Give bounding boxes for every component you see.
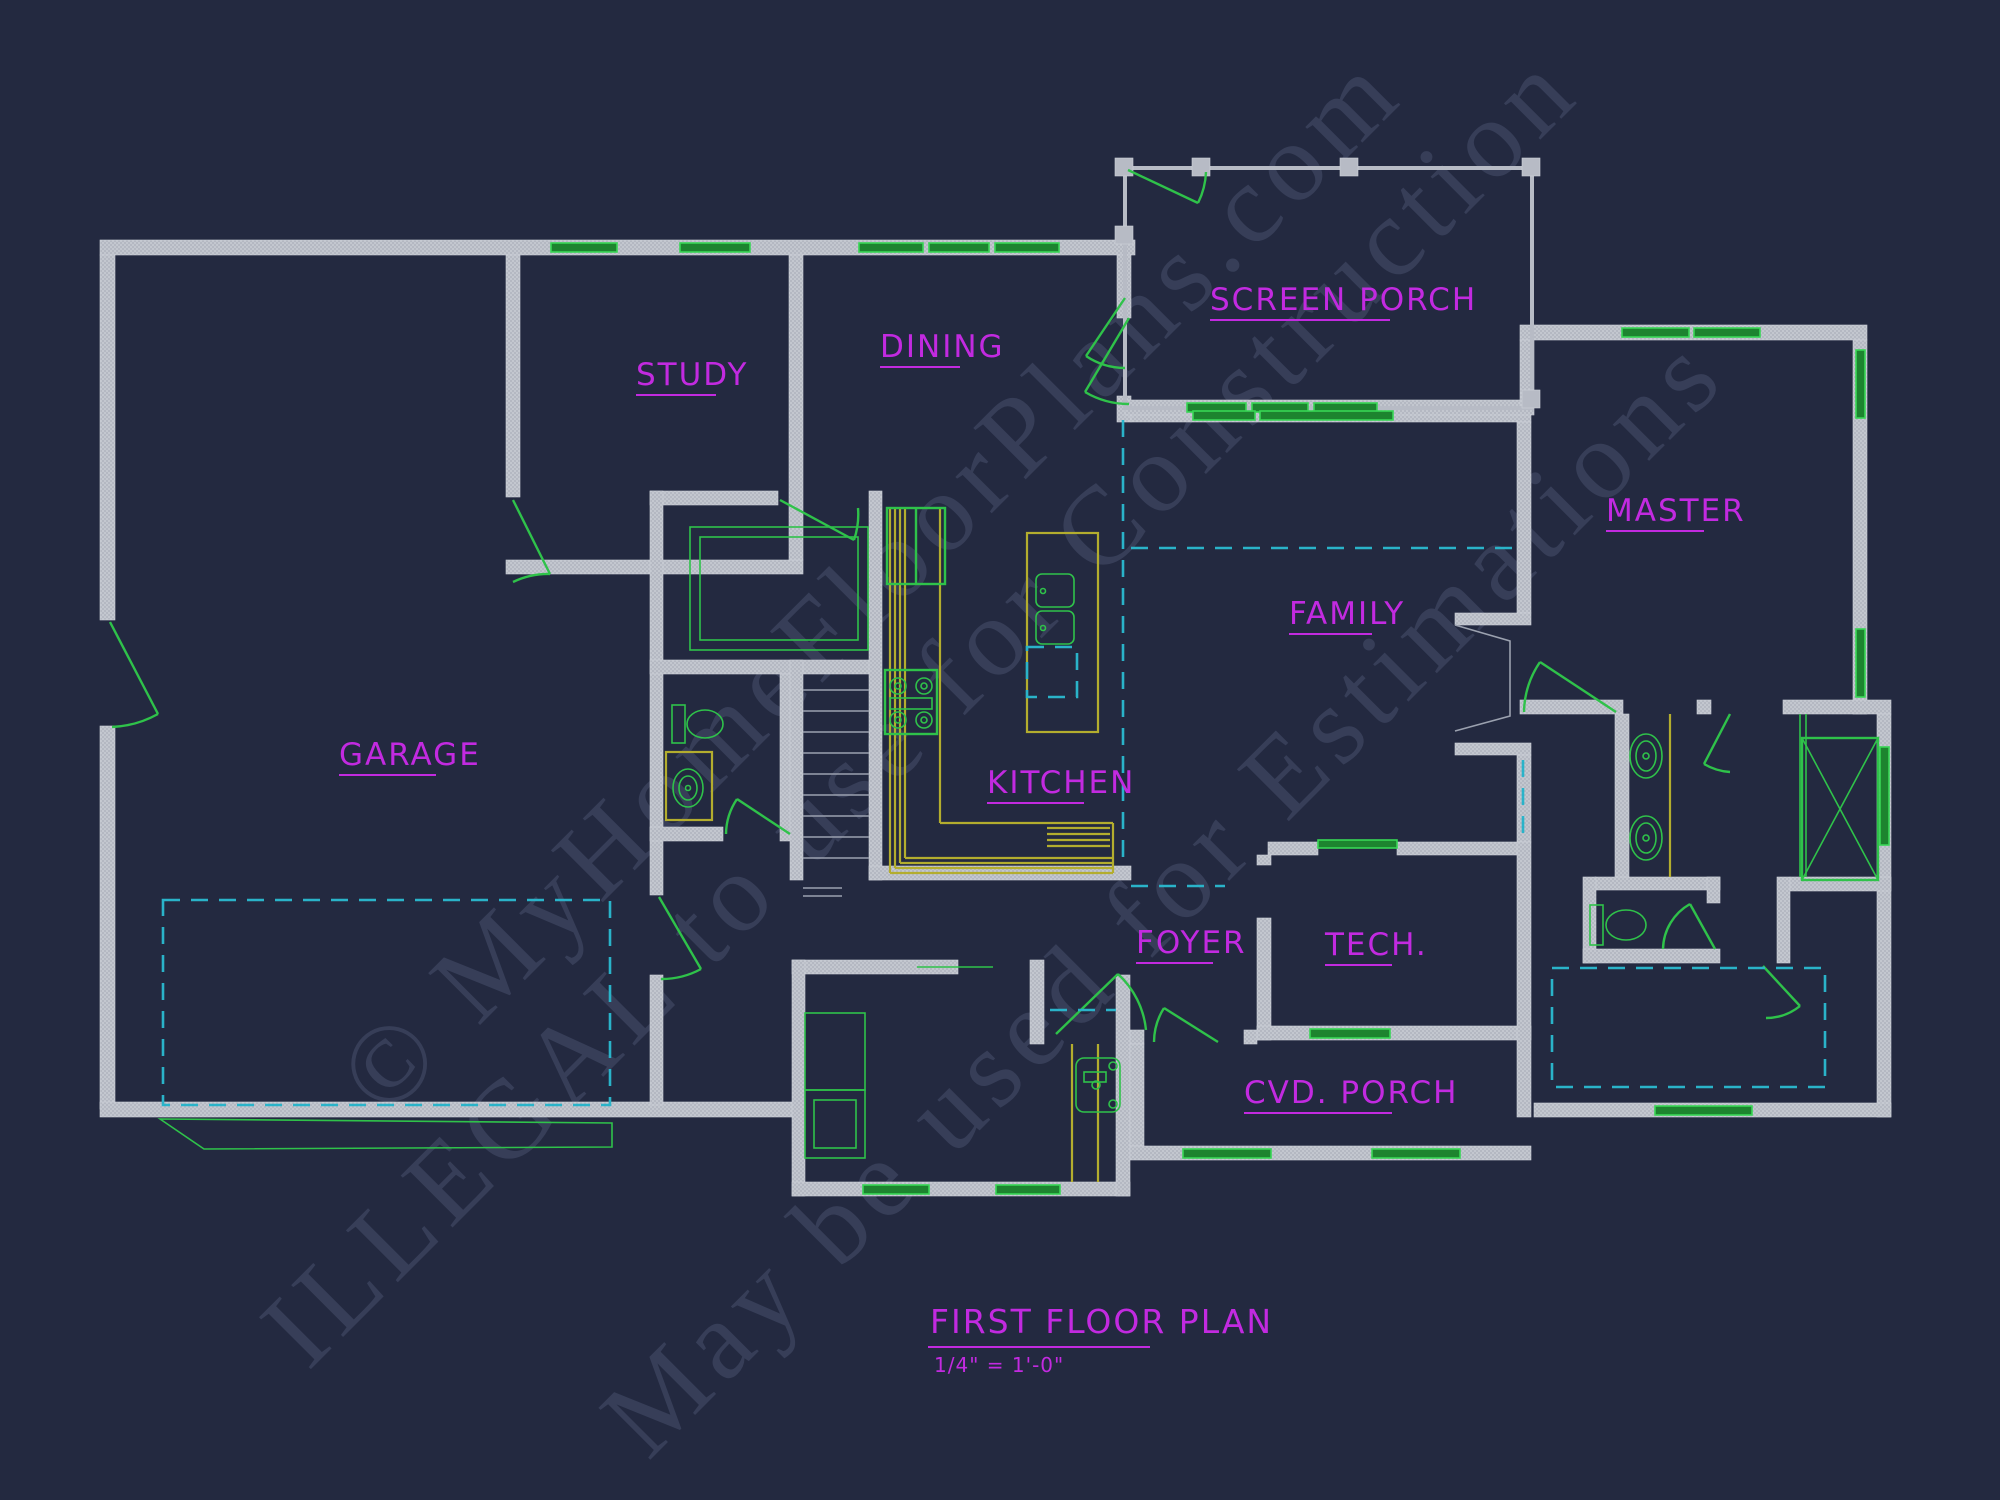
window [995,243,1059,252]
porch-dashed [1552,968,1825,1087]
room-label-study: STUDY [636,357,748,393]
window [1856,629,1865,697]
window [1310,1029,1390,1038]
window [1856,350,1865,418]
room-label-cvd-porch: CVD. PORCH [1244,1075,1458,1111]
room-label-kitchen: KITCHEN [987,765,1135,801]
door-swing [110,622,158,714]
room-label-tech: TECH. [1324,927,1428,963]
window [1318,840,1397,848]
room-label-master: MASTER [1606,493,1746,529]
room-label-screen-porch: SCREEN PORCH [1210,282,1477,318]
shower-icon [1800,714,1878,880]
window [996,1185,1060,1194]
window [1655,1106,1752,1115]
door-swing [1164,1008,1218,1042]
door-swing [1704,714,1730,764]
window [1622,328,1689,337]
floor-plan-canvas: © MyHomeFloorPlans.com ILLEGAL to use fo… [0,0,2000,1500]
door-swing [1766,1006,1800,1018]
title-block: FIRST FLOOR PLAN 1/4" = 1'-0" [928,1302,1273,1377]
counter-edge [890,823,1113,873]
door-swing [1663,904,1690,949]
window [929,243,989,252]
room-label-foyer: FOYER [1136,925,1247,961]
window [1193,411,1255,420]
room-label-garage: GARAGE [339,737,481,773]
plan-title: FIRST FLOOR PLAN [930,1302,1273,1341]
floor-plan-drawing: © MyHomeFloorPlans.com ILLEGAL to use fo… [0,0,2000,1500]
door-swing [513,574,550,582]
sink-icon [1630,734,1662,860]
door-swing [1690,904,1715,949]
window [1183,1149,1271,1158]
window [1694,328,1760,337]
door-swing [1154,1008,1164,1042]
window [680,243,750,252]
room-label-dining: DINING [880,329,1005,365]
room-label-family: FAMILY [1289,596,1405,632]
window [1880,747,1889,845]
door-swing [112,714,158,727]
dishwasher [1047,828,1110,846]
door-swing [1704,764,1730,772]
window [1260,411,1393,420]
window [1372,1149,1460,1158]
window [863,1185,929,1194]
door-swing [1763,966,1800,1006]
window [551,243,617,252]
window [859,243,923,252]
toilet-icon [1590,905,1646,945]
plan-scale: 1/4" = 1'-0" [934,1353,1064,1377]
